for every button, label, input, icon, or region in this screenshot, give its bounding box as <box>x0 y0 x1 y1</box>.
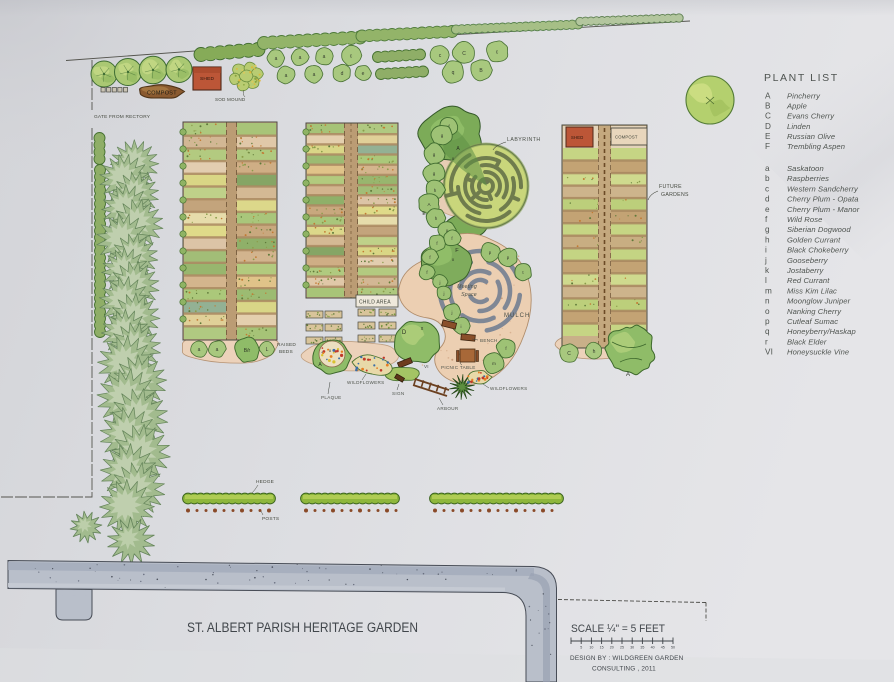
svg-text:Linden: Linden <box>787 122 810 131</box>
svg-text:Russian Olive: Russian Olive <box>787 132 835 141</box>
svg-text:Nanking Cherry: Nanking Cherry <box>787 307 842 316</box>
svg-text:d: d <box>765 195 770 204</box>
svg-text:Gooseberry: Gooseberry <box>787 256 829 265</box>
svg-text:g: g <box>433 152 436 157</box>
svg-text:p: p <box>765 317 770 326</box>
svg-text:LABYRINTH: LABYRINTH <box>507 137 541 143</box>
svg-text:15: 15 <box>600 646 604 650</box>
svg-text:5: 5 <box>580 646 582 650</box>
svg-text:40: 40 <box>651 646 655 650</box>
svg-text:30: 30 <box>630 646 634 650</box>
svg-text:Black Chokeberry: Black Chokeberry <box>787 246 850 255</box>
svg-text:h: h <box>435 216 438 221</box>
svg-text:Space: Space <box>461 292 477 298</box>
svg-text:g: g <box>433 171 436 176</box>
svg-text:POSTS: POSTS <box>262 516 279 522</box>
svg-text:Jostaberry: Jostaberry <box>786 266 825 275</box>
svg-text:Honeysuckle Vine: Honeysuckle Vine <box>787 348 849 357</box>
svg-text:b: b <box>765 174 770 183</box>
svg-text:d: d <box>341 71 344 77</box>
svg-text:ARBOUR: ARBOUR <box>437 406 459 411</box>
svg-text:20: 20 <box>610 646 614 650</box>
svg-text:h: h <box>434 188 437 193</box>
svg-text:CHILD AREA: CHILD AREA <box>359 300 391 306</box>
svg-text:B: B <box>765 102 771 111</box>
svg-text:h: h <box>593 349 596 355</box>
svg-text:D: D <box>402 330 407 336</box>
svg-text:SCALE ¼" = 5 FEET: SCALE ¼" = 5 FEET <box>571 623 665 635</box>
svg-text:e: e <box>362 71 365 77</box>
svg-text:CONSULTING , 2011: CONSULTING , 2011 <box>592 666 656 673</box>
svg-text:F: F <box>455 248 459 254</box>
svg-text:Honeyberry/Haskap: Honeyberry/Haskap <box>787 327 856 336</box>
svg-text:ST. ALBERT PARISH HERITAGE GAR: ST. ALBERT PARISH HERITAGE GARDEN <box>187 620 418 635</box>
svg-text:m: m <box>492 361 496 366</box>
svg-text:PLAQUE: PLAQUE <box>321 395 341 400</box>
svg-text:PICNIC TABLE: PICNIC TABLE <box>441 365 476 370</box>
svg-text:SOD MOUND: SOD MOUND <box>215 97 246 102</box>
svg-text:g: g <box>765 225 770 234</box>
svg-text:Siberian Dogwood: Siberian Dogwood <box>787 225 851 234</box>
svg-text:BEDS: BEDS <box>279 349 293 355</box>
svg-text:SIGN: SIGN <box>392 391 404 396</box>
svg-text:COMPOST: COMPOST <box>147 91 177 97</box>
svg-text:j: j <box>439 280 441 285</box>
svg-text:l: l <box>765 276 767 285</box>
svg-text:Moonglow Juniper: Moonglow Juniper <box>787 297 851 306</box>
svg-text:GATE FROM RECTORY: GATE FROM RECTORY <box>94 114 151 120</box>
svg-text:Wild Rose: Wild Rose <box>787 215 822 224</box>
svg-text:Evans Cherry: Evans Cherry <box>787 112 835 121</box>
svg-text:F: F <box>765 142 770 151</box>
svg-text:Meeting: Meeting <box>457 284 477 290</box>
svg-text:Miss Kim Lilac: Miss Kim Lilac <box>787 286 837 295</box>
svg-text:Pincherry: Pincherry <box>787 92 821 101</box>
svg-text:g: g <box>441 133 444 138</box>
svg-text:C: C <box>462 51 466 57</box>
svg-text:C: C <box>765 112 771 121</box>
svg-text:j: j <box>764 256 767 265</box>
svg-text:PLANT LIST: PLANT LIST <box>764 72 839 84</box>
svg-text:h: h <box>765 235 770 244</box>
svg-text:a: a <box>216 347 219 353</box>
svg-text:q: q <box>452 70 455 76</box>
svg-text:a: a <box>323 54 326 60</box>
svg-text:m: m <box>765 286 772 295</box>
svg-text:a: a <box>275 56 278 62</box>
svg-text:Golden Currant: Golden Currant <box>787 235 841 244</box>
svg-text:WILDFLOWERS: WILDFLOWERS <box>490 386 528 391</box>
svg-text:WILDFLOWERS: WILDFLOWERS <box>347 380 385 385</box>
svg-text:50: 50 <box>671 646 675 650</box>
svg-text:Raspberries: Raspberries <box>787 174 829 183</box>
svg-text:HEDGE: HEDGE <box>256 479 274 485</box>
svg-text:DESIGN BY : WILDGREEN GARDEN: DESIGN BY : WILDGREEN GARDEN <box>570 655 684 662</box>
svg-text:Black Elder: Black Elder <box>787 337 827 346</box>
svg-text:Western Sandcherry: Western Sandcherry <box>787 184 859 193</box>
svg-text:e: e <box>765 205 770 214</box>
svg-text:D: D <box>765 122 771 131</box>
svg-text:RAISED: RAISED <box>277 342 296 348</box>
svg-text:45: 45 <box>661 646 665 650</box>
svg-text:L: L <box>266 347 269 353</box>
svg-text:25: 25 <box>620 646 624 650</box>
svg-text:c: c <box>765 184 769 193</box>
svg-text:Trembling Aspen: Trembling Aspen <box>787 142 845 151</box>
svg-text:10: 10 <box>589 646 593 650</box>
svg-text:a: a <box>765 164 770 173</box>
svg-text:j: j <box>451 310 453 315</box>
svg-text:n: n <box>765 297 770 306</box>
svg-text:35: 35 <box>640 646 644 650</box>
svg-text:VI: VI <box>424 364 429 369</box>
svg-text:Saskatoon: Saskatoon <box>787 164 824 173</box>
svg-text:SHED: SHED <box>571 135 583 140</box>
svg-text:BENCH: BENCH <box>480 338 498 343</box>
svg-text:r: r <box>765 337 768 346</box>
svg-text:a: a <box>313 72 316 78</box>
svg-text:B/r: B/r <box>244 348 251 354</box>
svg-text:COMPOST: COMPOST <box>615 135 638 140</box>
svg-text:Cherry Plum - Manor: Cherry Plum - Manor <box>787 205 860 214</box>
svg-text:j: j <box>443 291 445 296</box>
svg-text:FUTURE: FUTURE <box>659 184 682 190</box>
svg-text:C: C <box>567 351 571 357</box>
svg-text:Cutleaf Sumac: Cutleaf Sumac <box>787 317 838 326</box>
svg-text:GARDENS: GARDENS <box>661 192 689 198</box>
svg-text:Red Currant: Red Currant <box>787 276 830 285</box>
svg-text:a: a <box>299 55 302 61</box>
svg-text:i: i <box>461 324 462 329</box>
svg-text:o: o <box>765 307 770 316</box>
svg-text:E: E <box>765 132 771 141</box>
svg-text:q: q <box>765 327 770 336</box>
svg-text:i: i <box>765 246 767 255</box>
svg-text:SHED: SHED <box>200 76 214 82</box>
svg-text:A: A <box>765 92 771 101</box>
svg-text:VI: VI <box>765 348 773 357</box>
svg-text:Apple: Apple <box>786 102 807 111</box>
svg-text:A: A <box>626 372 630 378</box>
svg-text:MULCH: MULCH <box>504 313 530 319</box>
svg-text:a: a <box>285 73 288 79</box>
svg-text:k: k <box>765 266 770 275</box>
svg-text:Cherry Plum - Opata: Cherry Plum - Opata <box>787 195 859 204</box>
svg-text:a: a <box>198 347 201 353</box>
